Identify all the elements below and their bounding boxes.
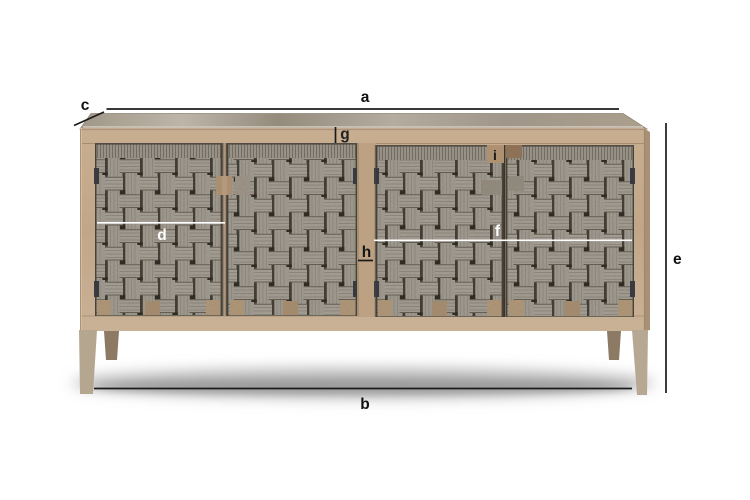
svg-text:f: f [495,223,501,240]
svg-text:i: i [493,147,497,163]
svg-text:h: h [362,244,371,261]
svg-text:d: d [157,227,166,244]
svg-text:a: a [361,89,370,106]
svg-text:g: g [340,126,349,143]
svg-text:c: c [81,97,90,114]
svg-text:b: b [360,396,369,413]
svg-text:e: e [673,251,682,268]
